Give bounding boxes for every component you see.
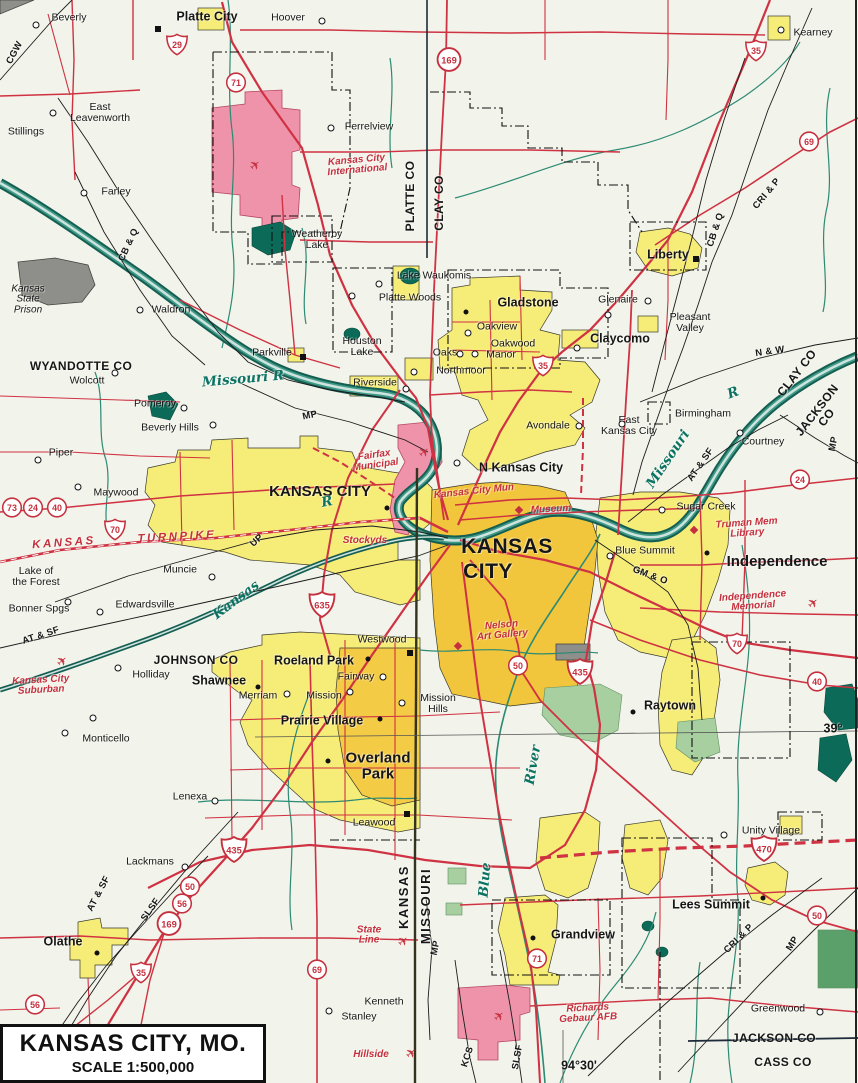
map-title-box: KANSAS CITY, MO. SCALE 1:500,000: [0, 1024, 266, 1083]
map-graphics: [0, 0, 858, 1083]
map-title: KANSAS CITY, MO.: [3, 1030, 263, 1058]
map-canvas[interactable]: BeverlyPlatte CityHooverKearneyEast Leav…: [0, 0, 858, 1083]
map-scale: SCALE 1:500,000: [3, 1059, 263, 1076]
